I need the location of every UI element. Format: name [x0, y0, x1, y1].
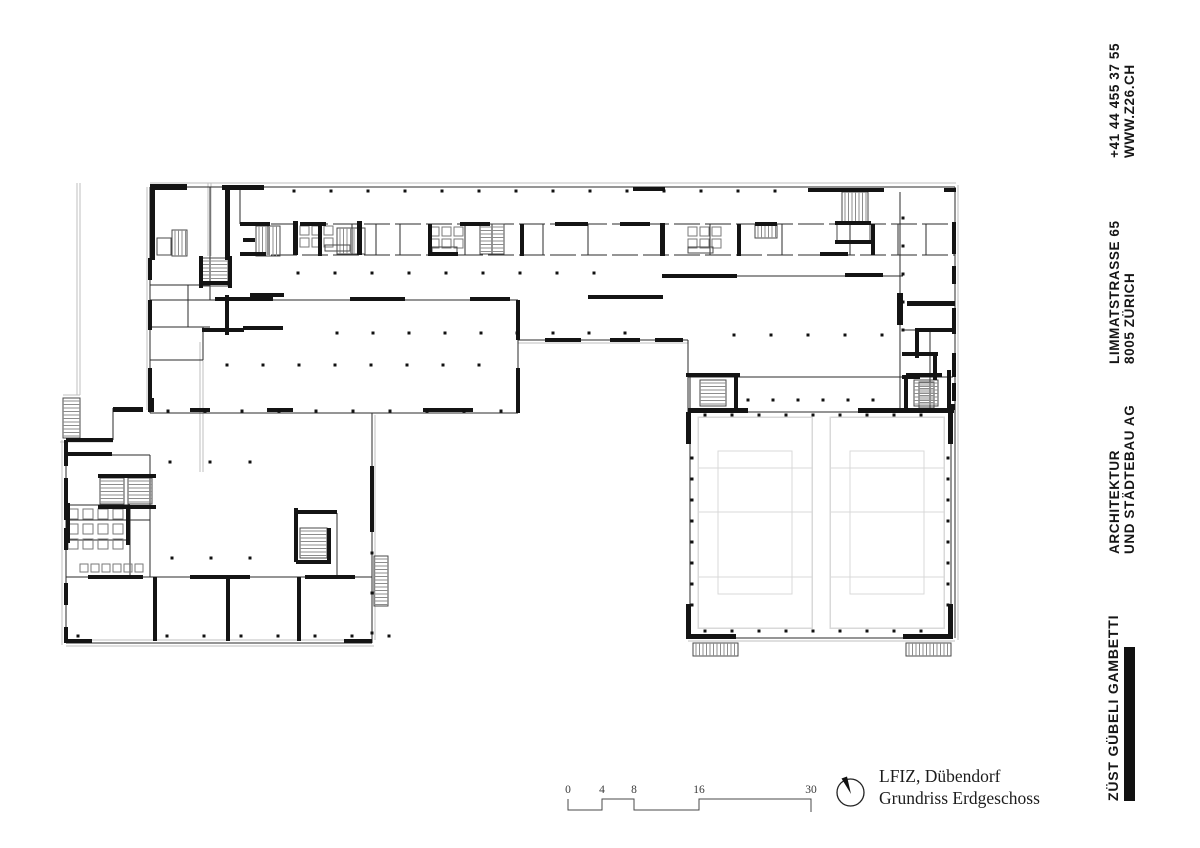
firm-type-line1: ARCHITEKTUR: [1107, 450, 1122, 554]
firm-brand-name: ZÜST GÜBELI GAMBETTI: [1105, 615, 1121, 801]
firm-website: WWW.Z26.CH: [1122, 64, 1137, 158]
firm-address-city: 8005 ZÜRICH: [1122, 273, 1137, 364]
scale-bar: 0 4 8 16 30: [565, 784, 817, 812]
firm-phone: +41 44 455 37 55: [1107, 43, 1122, 158]
scale-label-0: 0: [565, 784, 571, 796]
scale-label-4: 4: [599, 784, 605, 796]
scale-label-8: 8: [631, 784, 637, 796]
drawing-title: Grundriss Erdgeschoss: [879, 788, 1040, 808]
floor-plan-drawing: 0 4 8 16 30 LFIZ, Dübendorf Grundriss Er…: [0, 0, 1200, 848]
scale-label-30: 30: [805, 784, 817, 796]
firm-type-line2: UND STÄDTEBAU AG: [1122, 405, 1137, 554]
brand-bar: [1124, 647, 1135, 801]
north-arrow-icon: [837, 777, 864, 807]
project-title: LFIZ, Dübendorf: [879, 766, 1001, 786]
scale-label-16: 16: [693, 784, 705, 796]
drawing-sheet: 0 4 8 16 30 LFIZ, Dübendorf Grundriss Er…: [0, 0, 1200, 848]
firm-address-street: LIMMATSTRASSE 65: [1107, 220, 1122, 364]
scale-bar-line: [568, 799, 811, 812]
title-block: LFIZ, Dübendorf Grundriss Erdgeschoss: [879, 766, 1040, 808]
